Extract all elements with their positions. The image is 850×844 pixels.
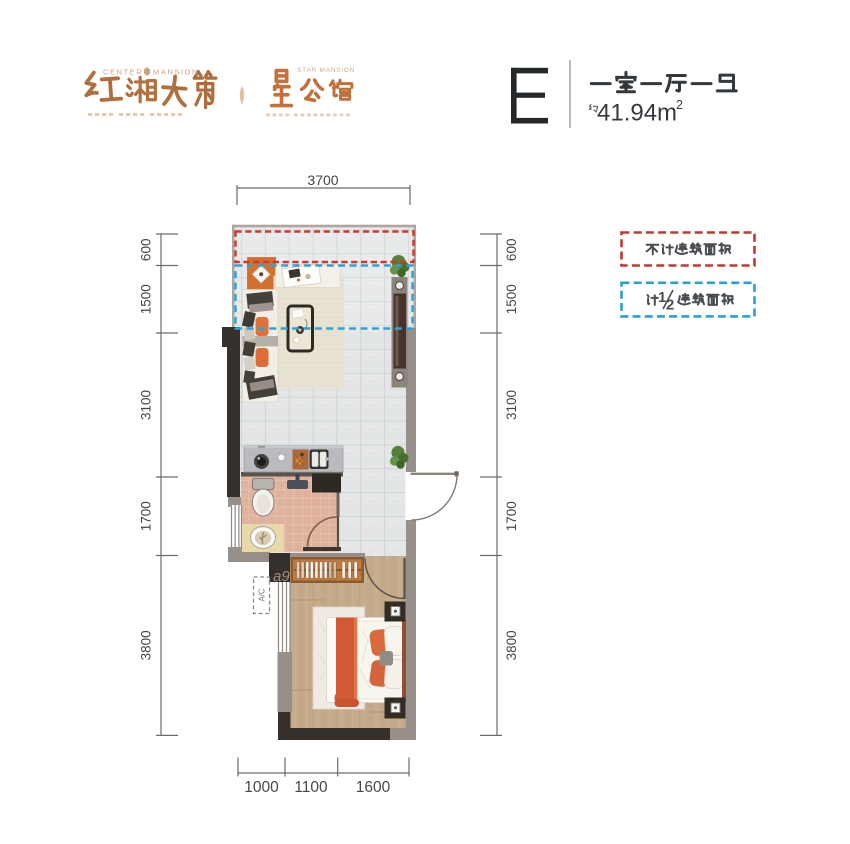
svg-text:1500: 1500 bbox=[139, 284, 154, 314]
svg-text:2: 2 bbox=[666, 297, 674, 314]
svg-text:3100: 3100 bbox=[139, 390, 154, 420]
svg-text:3700: 3700 bbox=[307, 172, 338, 188]
svg-text:MANSION: MANSION bbox=[153, 68, 199, 77]
svg-text:41.94m: 41.94m bbox=[597, 100, 677, 127]
svg-text:CENTER: CENTER bbox=[103, 68, 143, 77]
svg-text:1700: 1700 bbox=[504, 501, 519, 531]
svg-text:2: 2 bbox=[676, 98, 683, 112]
svg-text:3100: 3100 bbox=[504, 390, 519, 420]
svg-text:1600: 1600 bbox=[356, 779, 391, 796]
svg-text:1700: 1700 bbox=[139, 501, 154, 531]
svg-text:1000: 1000 bbox=[244, 779, 279, 796]
svg-text:A/C: A/C bbox=[258, 588, 267, 602]
svg-text:1100: 1100 bbox=[294, 779, 328, 796]
svg-text:600: 600 bbox=[504, 239, 519, 262]
svg-text:a9: a9 bbox=[273, 568, 290, 585]
svg-text:STAR MANSION: STAR MANSION bbox=[297, 67, 355, 74]
svg-text:1500: 1500 bbox=[504, 284, 519, 314]
svg-text:3800: 3800 bbox=[504, 630, 519, 660]
svg-text:3800: 3800 bbox=[139, 630, 154, 660]
svg-text:600: 600 bbox=[139, 239, 154, 262]
